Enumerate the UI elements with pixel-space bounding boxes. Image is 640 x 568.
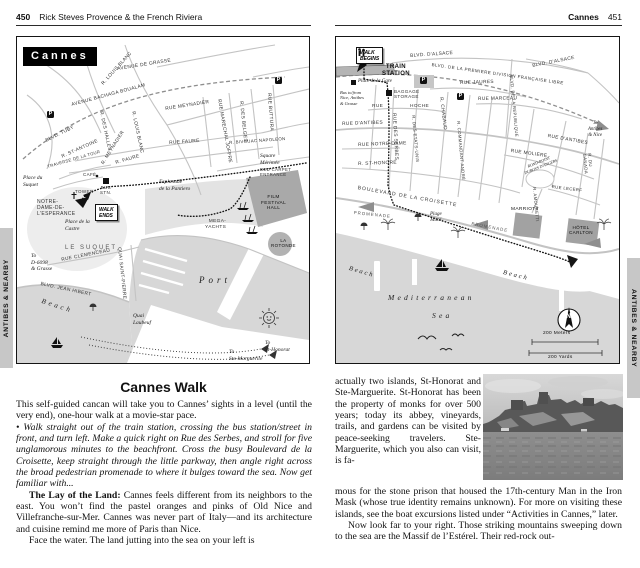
left-page-header: 450 Rick Steves Provence & the French Ri…	[16, 11, 311, 26]
compass-north-label: N	[566, 313, 571, 321]
port-label: Port	[199, 275, 231, 286]
iron-mask-paragraph: mous for the stone prison that housed th…	[335, 486, 622, 520]
bus-note-label: Bus to/from Nice, Antibes & Grasse	[340, 90, 364, 106]
parking-icon: P	[420, 77, 427, 84]
rue-hoche-label: RUE	[372, 104, 383, 110]
section-tab-label: ANTIBES & NEARBY	[3, 259, 10, 337]
cafe-label: CAFÉ	[83, 172, 96, 177]
sea-label: Sea	[432, 311, 452, 320]
cannes-walk-article: This self-guided cancan will take you to…	[16, 399, 312, 546]
tower-label: TOWER	[75, 189, 93, 194]
walk-heading: Cannes Walk	[16, 379, 311, 395]
st-honorat-island-photo	[483, 374, 623, 480]
place-de-la-gare-label: Place de la Gare	[358, 79, 392, 85]
walking-figures-icon	[357, 48, 366, 59]
islands-column-text: actually two islands, St-Honorat and Ste…	[335, 376, 481, 488]
square-merimee-label: Square Mérimée	[260, 153, 280, 166]
to-grasse-label: To D-6098 & Grasse	[31, 253, 52, 273]
baggage-storage-label: BAGGAGE STORAGE	[394, 89, 419, 100]
bus-station-icon	[103, 178, 109, 184]
page-number: 450	[16, 12, 30, 22]
film-festival-hall-label: FILM FESTIVAL HALL	[261, 195, 286, 212]
rue-hoche-label: HOCHE	[410, 104, 429, 110]
to-st-honorat-label: To St-Honorat	[265, 340, 290, 353]
parking-icon: P	[275, 77, 282, 84]
place-du-suquet-label: Place du Suquet	[23, 175, 42, 188]
bus-station-label: BUS STN.	[100, 185, 112, 195]
hotel-carlton-label: HÔTEL CARLTON	[569, 225, 593, 236]
parking-icon: P	[457, 93, 464, 100]
cannes-beachfront-map: WALK BEGINS TRAIN STATION Place de la Ga…	[335, 36, 620, 364]
map-title: Cannes	[23, 47, 97, 66]
page-number: 451	[608, 12, 622, 22]
red-carpet-entrance-label: RED CARPET ENTRANCE	[260, 168, 291, 178]
section-tab-left: ANTIBES & NEARBY	[0, 228, 13, 368]
lay-of-the-land-lead: The Lay of the Land:	[29, 490, 121, 501]
walk-ends-box: WALK ENDS	[95, 204, 118, 221]
section-tab-right: ANTIBES & NEARBY	[627, 258, 640, 398]
walk-ends-label: WALK ENDS	[99, 207, 114, 219]
islands-continued-text: mous for the stone prison that housed th…	[335, 486, 622, 543]
scale-yards-label: 200 Yards	[548, 355, 573, 361]
train-station-label: TRAIN STATION	[382, 64, 410, 78]
section-tab-label: ANTIBES & NEARBY	[630, 289, 637, 367]
cannes-old-town-map: Cannes P P AVENUE DE GRASSE R. LOUIS BLA…	[16, 36, 310, 364]
to-antibes-nice-label: To Antibes & Nice	[588, 121, 602, 139]
chapter-title: Cannes	[568, 12, 599, 22]
railway-line	[23, 77, 285, 159]
walk-directions-paragraph: • Walk straight out of the train station…	[16, 422, 312, 490]
right-page-header: Cannes 451	[335, 11, 622, 26]
walk-begins-box: WALK BEGINS	[356, 47, 383, 64]
mega-yachts-label: MEGA- YACHTS	[205, 219, 226, 230]
rue-jaures-label: RUE JAURES	[460, 80, 494, 87]
place-de-la-castre-label: Place de la Castre	[65, 219, 90, 232]
quai-laubeuf-label: Quai Laubeuf	[133, 313, 151, 326]
parking-icon: P	[47, 111, 54, 118]
notre-dame-esperance-label: NOTRE- DAME-DE- L'ESPERANCE	[37, 200, 75, 217]
plage-mace-label: Plage Macé	[430, 212, 442, 224]
to-ste-marguerite-label: To Ste-Marguerite	[229, 349, 262, 362]
mediterranean-label: Mediterranean	[388, 293, 475, 302]
baggage-icon	[386, 90, 392, 96]
esplanade-pantiero-label: Esplanade de la Pantiero	[159, 179, 190, 192]
lay-of-the-land-paragraph: The Lay of the Land: Cannes feels differ…	[16, 490, 312, 535]
la-rotonde-label: LA ROTONDE	[271, 238, 296, 248]
marriott-label: MARRIOTT	[511, 207, 539, 213]
esterel-paragraph: Now look far to your right. Those striki…	[335, 520, 622, 543]
bus-stop-icon	[351, 80, 356, 85]
le-suquet-label: LE SUQUET	[65, 245, 117, 252]
scale-meters-label: 200 Meters	[543, 331, 571, 337]
face-the-water-paragraph: Face the water. The land jutting into th…	[16, 535, 312, 546]
book-title: Rick Steves Provence & the French Rivier…	[39, 12, 202, 22]
walk-intro-paragraph: This self-guided cancan will take you to…	[16, 399, 312, 422]
